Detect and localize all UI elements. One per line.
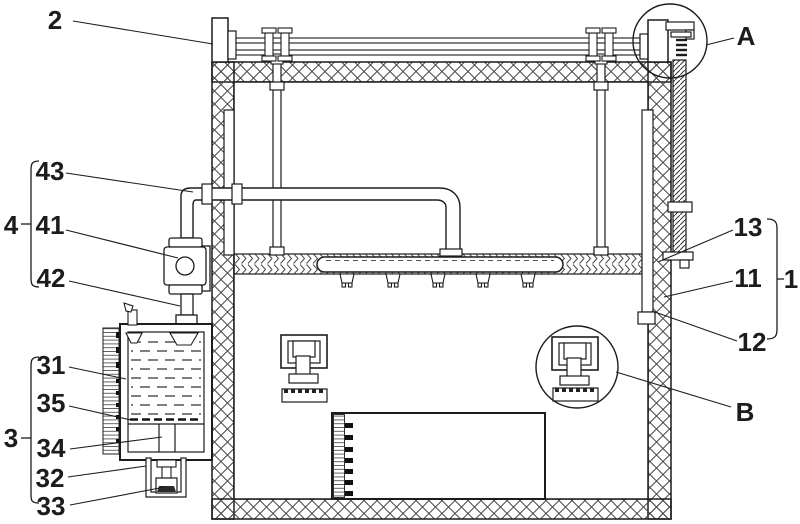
label-33: 33 — [37, 491, 66, 521]
label-2: 2 — [48, 5, 62, 35]
label-31: 31 — [37, 350, 66, 380]
unit-base — [560, 376, 589, 385]
rod-foot — [594, 247, 608, 255]
rod-foot-nub — [680, 260, 689, 268]
rail-flange-right — [640, 34, 648, 59]
pump-top-flange — [169, 238, 202, 247]
rail-bar-bottom — [236, 50, 640, 55]
label-3: 3 — [4, 423, 18, 453]
label-43: 43 — [36, 156, 65, 186]
label-4: 4 — [4, 210, 19, 240]
rail-bar-top — [236, 38, 640, 43]
label-A: A — [737, 21, 756, 51]
right-liner-plate — [642, 110, 653, 312]
label-B: B — [736, 397, 755, 427]
left-inner-liner — [224, 110, 234, 255]
spring-seat — [671, 32, 691, 37]
unit-core — [293, 341, 315, 357]
bottom-wall — [212, 499, 671, 519]
rail-post — [212, 18, 228, 62]
tray-scale-strip — [334, 415, 345, 498]
filter-pipe — [162, 467, 171, 478]
label-42: 42 — [37, 263, 66, 293]
pump-bottom-flange — [169, 285, 202, 294]
right-liner-foot — [638, 312, 655, 324]
filter-flange — [157, 460, 176, 467]
dosing-tank — [120, 303, 212, 460]
wall-flange-inner — [232, 184, 242, 204]
patent-figure-page: 2 43 4 41 42 31 35 3 34 32 33 13 11 1 12… — [0, 0, 800, 524]
label-35: 35 — [37, 388, 66, 418]
patent-figure: 2 43 4 41 42 31 35 3 34 32 33 13 11 1 12… — [0, 0, 800, 524]
tank-inlet-flange — [176, 315, 197, 324]
unit-stem — [296, 356, 310, 375]
tray-body — [332, 413, 545, 499]
rod-foot — [270, 247, 284, 255]
filter-motor-base — [157, 486, 176, 492]
top-plate — [666, 22, 694, 30]
heater-unit-center — [281, 335, 327, 402]
tank-outer — [120, 324, 212, 460]
wall-flange-outer — [202, 184, 212, 204]
rod-collar — [668, 202, 692, 212]
unit-base — [289, 374, 318, 383]
label-32: 32 — [36, 463, 65, 493]
drive-block — [648, 20, 668, 62]
unit-core — [564, 343, 586, 359]
washing-tray — [332, 413, 545, 499]
rod-collar — [270, 82, 284, 90]
label-12: 12 — [738, 327, 767, 357]
label-34: 34 — [37, 433, 66, 463]
label-41: 41 — [36, 210, 65, 240]
rod-collar — [594, 82, 608, 90]
label-11: 11 — [734, 263, 762, 293]
spray-bar-body — [317, 257, 563, 272]
spray-bar — [317, 257, 563, 272]
label-1: 1 — [784, 264, 798, 294]
heater-unit-detail-B — [552, 337, 598, 401]
label-13: 13 — [734, 212, 763, 242]
pump-dial — [176, 257, 194, 275]
unit-stem — [567, 358, 581, 377]
threaded-rod — [673, 60, 686, 253]
rail-flange-left — [228, 31, 236, 59]
pump-outlet-pipe — [181, 294, 193, 315]
pipe-foot — [440, 249, 462, 256]
